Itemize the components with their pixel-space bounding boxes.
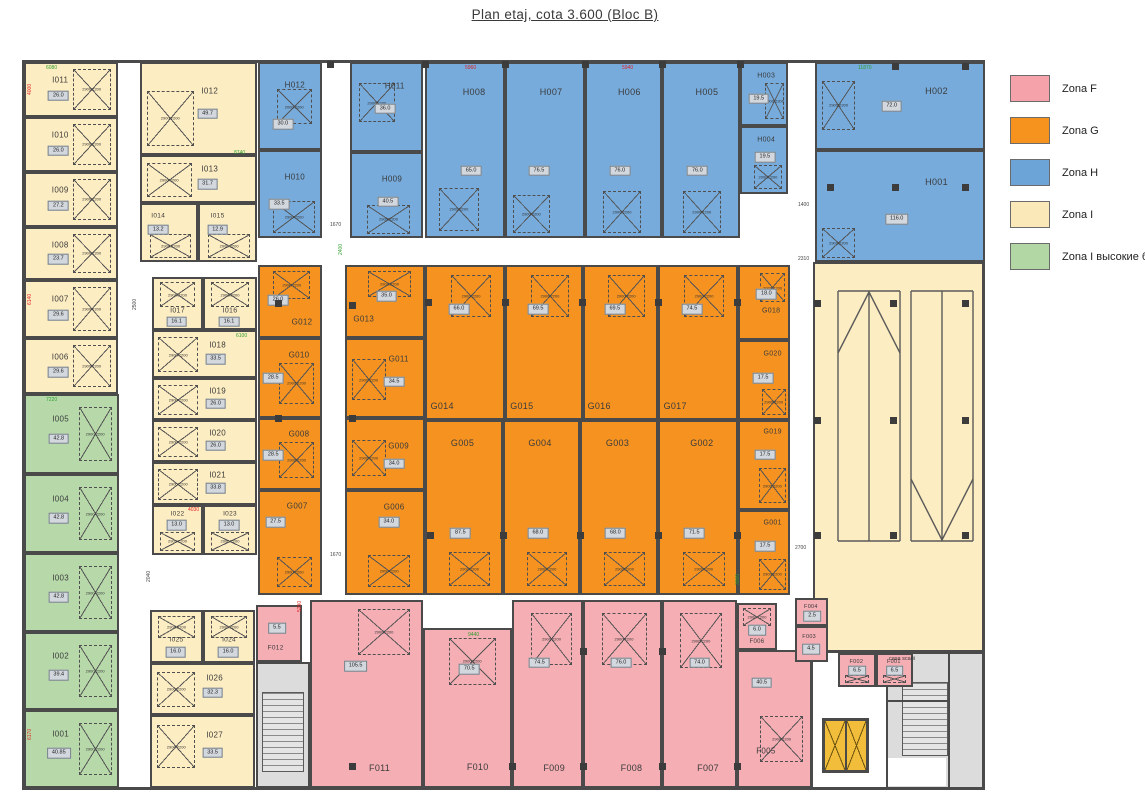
room-area-chip: 105.5 (344, 661, 368, 672)
column-marker (737, 61, 744, 68)
hatch-box: 2900/2200 (73, 179, 111, 220)
hatch-box: 2900/2200 (279, 442, 314, 479)
room-name-label: I001 (52, 730, 69, 739)
hatch-size-label: 2900/2200 (460, 567, 479, 572)
ramp-down-icon (910, 290, 974, 542)
hatch-box: 2900/2200 (439, 188, 479, 231)
room-area-chip: 40.5 (751, 678, 772, 689)
room-area-chip: 74.5 (529, 657, 550, 668)
room-I016: 2900/2200I01616.1 (203, 277, 257, 330)
room-F012: F0125.5 (256, 605, 302, 662)
hatch-size-label: 2900/2200 (287, 458, 306, 463)
hatch-box: 2900/2200 (211, 282, 249, 307)
column-marker (814, 532, 821, 539)
hatch-box: 2900/2200 (358, 609, 410, 655)
hatch-size-label: 2900/2200 (449, 207, 468, 212)
room-name-label: I022 (171, 510, 185, 517)
dimension-label: 11870 (858, 65, 872, 71)
room-name-label: F002 (849, 659, 863, 665)
room-F004: F0042.5 (795, 598, 828, 626)
room-area-chip: 71.5 (684, 528, 705, 539)
dimension-label: 6100 (236, 333, 247, 339)
room-G009: 2900/2200G00934.0 (345, 418, 425, 490)
room-name-label: H007 (540, 87, 563, 97)
room-area-chip: 87.5 (450, 528, 471, 539)
room-F005: 2900/2200F00540.5 (737, 650, 812, 788)
room-name-label: G013 (353, 315, 374, 324)
hatch-box: 2900/2200 (822, 81, 855, 130)
room-area-chip: 5.5 (268, 623, 286, 634)
room-area-chip: 16.1 (219, 316, 240, 327)
room-name-label: I015 (211, 213, 225, 220)
column-marker (962, 532, 969, 539)
column-marker (500, 532, 507, 539)
room-G017: 2900/2200G01774.5 (658, 265, 738, 420)
hatch-size-label: 2900/2200 (379, 217, 398, 222)
area-block (888, 758, 946, 786)
ramp-up-icon (837, 290, 901, 542)
dimension-label: 4000 (27, 84, 33, 95)
hatch-size-label: 2900/2200 (167, 624, 186, 629)
room-F003: F0034.5 (795, 626, 828, 662)
legend-label: Zona G (1062, 125, 1099, 137)
hatch-box: 2900/2200 (157, 672, 195, 708)
hatch-size-label: 2900/2200 (168, 292, 187, 297)
room-area-chip: 74.0 (689, 657, 710, 668)
column-marker (890, 417, 897, 424)
hatch-box: 2900/2200 (150, 234, 191, 258)
room-H002: 2900/2200H00272.0 (815, 62, 985, 150)
room-name-label: H009 (382, 174, 402, 183)
room-name-label: I013 (201, 165, 218, 174)
hatch-box: 2900/2200 (157, 725, 195, 768)
room-G010: 2900/2200G01028.5 (258, 338, 322, 418)
room-H007: 2900/2200H00776.5 (505, 62, 585, 238)
hatch-size-label: 2900/2200 (374, 630, 393, 635)
hatch-box: 2900/2200 (158, 427, 198, 457)
room-G008: 2900/2200G00828.5 (258, 418, 322, 490)
hatch-size-label: 2900/2200 (169, 352, 188, 357)
room-area-chip: 6.5 (886, 665, 904, 676)
column-marker (962, 63, 969, 70)
hatch-size-label: 2900/2200 (613, 209, 632, 214)
legend-swatch (1010, 243, 1050, 270)
room-I026: 2900/2200I02632.3 (150, 663, 255, 715)
room-G003: 2900/2200G00368.0 (580, 420, 658, 595)
legend-item: Zona I (1010, 201, 1140, 228)
legend-swatch (1010, 159, 1050, 186)
hatch-box: 2900/2200 (683, 552, 725, 586)
column-marker (962, 300, 969, 307)
room-name-label: G007 (287, 502, 308, 511)
legend-item: Zona F (1010, 75, 1140, 102)
hatch-size-label: 2000/2200 (285, 104, 304, 109)
room-name-label: G016 (588, 401, 611, 411)
room-name-label: I006 (52, 352, 69, 361)
room-G011: 2900/2200G01134.5 (345, 338, 425, 418)
hatch-size-label: 2900/2200 (522, 211, 541, 216)
room-I019: 2900/2200I01926.0 (152, 378, 257, 420)
room-G018: 2000/2200G01818.0 (738, 265, 790, 340)
dimension-label: 7220 (46, 397, 57, 403)
column-marker (892, 63, 899, 70)
column-marker (580, 648, 587, 655)
legend-label: Zona I высокие боксы (1062, 251, 1145, 263)
room-name-label: G010 (289, 351, 310, 360)
room-area-chip: 13.0 (166, 520, 187, 531)
room-name-label: F004 (804, 604, 818, 610)
room-name-label: G011 (389, 355, 409, 364)
room-name-label: G003 (606, 438, 629, 448)
column-marker (327, 61, 334, 68)
room-name-label: I016 (223, 308, 238, 315)
column-marker (349, 415, 356, 422)
room-name-label: F003 (802, 634, 816, 640)
room-area-chip: 33.8 (205, 483, 226, 494)
dimension-label: 6170 (27, 729, 33, 740)
hatch-box: 2900/2200 (158, 337, 198, 372)
room-name-label: I008 (52, 240, 69, 249)
room-I023: 2900/2200I02313.0 (203, 505, 257, 555)
hatch-box: 2900/2200 (368, 555, 410, 587)
legend-swatch (1010, 201, 1050, 228)
hatch-size-label: 2900/2200 (691, 638, 710, 643)
hatch-box: 2900/2200 (158, 385, 198, 415)
room-area-chip: 33.5 (205, 354, 226, 365)
hatch-box: 2900/2200 (603, 191, 641, 232)
column-marker (502, 61, 509, 68)
column-marker (962, 417, 969, 424)
hatch-size-label: 2900/2200 (86, 668, 105, 673)
hatch-size-label: 2900/2200 (169, 482, 188, 487)
hatch-size-label: 2900/2200 (168, 539, 187, 544)
room-area-chip: 6.0 (748, 625, 766, 636)
room-G019: 2900/2200G01917.5 (738, 420, 790, 510)
room-area-chip: 35.0 (376, 291, 397, 302)
column-marker (349, 763, 356, 770)
room-name-label: G014 (431, 401, 454, 411)
room-name-label: H010 (285, 173, 305, 182)
hatch-box: 2900/2200 (277, 557, 312, 587)
room-name-label: F011 (369, 763, 390, 773)
room-area-chip: 27.5 (265, 517, 286, 528)
room-area-chip: 42.8 (48, 592, 69, 603)
hatch-box: 2900/2200 (683, 191, 721, 232)
room-name-label: I024 (222, 637, 236, 644)
room-name-label: G001 (763, 520, 781, 527)
room-I017: 2900/2200I01716.1 (152, 277, 203, 330)
room-F007: 2900/2200F00774.0 (662, 600, 737, 788)
hatch-box: 2900/2200 (759, 559, 785, 590)
room-name-label: I019 (209, 386, 226, 395)
hatch-size-label: 2900/2200 (221, 292, 240, 297)
hatch-size-label: 2900/2200 (695, 293, 714, 298)
room-I009: 2900/2200I00927.2 (24, 172, 118, 227)
room-area-chip: 30.0 (272, 119, 293, 130)
room-name-label: F012 (268, 645, 284, 652)
dimension-label: 9440 (468, 632, 479, 638)
hatch-box: 2900/2200 (73, 124, 111, 165)
hatch-size-label: 2900/2200 (86, 746, 105, 751)
hatch-box: 2900/2200 (79, 487, 112, 540)
room-F002: F0026.5 (838, 653, 876, 687)
hatch-box: 2900/2200 (604, 552, 645, 586)
floor-plan-page: Plan etaj, cota 3.600 (Bloc B) 2900/2200… (0, 0, 1145, 800)
hatch-size-label: 2900/2200 (772, 737, 791, 742)
room-name-label: I023 (223, 510, 237, 517)
dimension-label: 6140 (27, 294, 33, 305)
hatch-size-label: 2900/2200 (86, 590, 105, 595)
room-H004: 2000/2200H00419.5 (740, 126, 788, 194)
hatch-size-label: 2900/2200 (161, 243, 180, 248)
room-F010: 2900/2200F01070.5 (423, 628, 512, 788)
room-name-label: G004 (528, 438, 551, 448)
room-name-label: H011 (385, 81, 405, 90)
hatch-size-label: 2900/2200 (287, 381, 306, 386)
hatch-size-label: 2900/2200 (829, 240, 848, 245)
hatch-size-label: 2900/2200 (82, 363, 101, 368)
hatch-size-label: 2900/2200 (542, 636, 561, 641)
room-area-chip: 42.8 (48, 433, 69, 444)
room-area-chip: 49.7 (197, 109, 218, 120)
room-I007: 2900/2200I00729.6 (24, 280, 118, 338)
column-marker (425, 299, 432, 306)
column-marker (890, 300, 897, 307)
hatch-box: 2900/2200 (762, 389, 786, 415)
dimension-label: 2500 (132, 299, 138, 310)
hatch-size-label: 2900/2200 (285, 214, 304, 219)
room-area-chip: 31.7 (197, 179, 218, 190)
room-area-chip: 76.0 (687, 165, 708, 176)
hatch-size-label: 2900/2200 (615, 567, 634, 572)
hatch-size-label: 2900/2200 (692, 209, 711, 214)
room-name-label: G012 (292, 318, 313, 327)
room-name-label: G020 (763, 351, 781, 358)
hatch-size-label: 2900/2200 (167, 687, 186, 692)
room-name-label: G017 (664, 401, 687, 411)
room-I020: 2900/2200I02026.0 (152, 420, 257, 462)
column-marker (427, 532, 434, 539)
room-area-chip: 72.0 (881, 101, 902, 112)
hatch-box: 2900/2200 (147, 163, 192, 197)
legend-item: Zona G (1010, 117, 1140, 144)
room-F008: 2900/2200F00876.0 (583, 600, 662, 788)
room-area-chip: 68.0 (605, 528, 626, 539)
room-G013: 2900/2200G01335.0 (345, 265, 425, 338)
room-G015: 2900/2200G01569.5 (505, 265, 583, 420)
room-I003: 2900/2200I00342.8 (24, 553, 119, 632)
hatch-size-label: 2900/2200 (169, 439, 188, 444)
room-name-label: G005 (451, 438, 474, 448)
room-name-label: G008 (289, 429, 310, 438)
room-name-label: I007 (52, 295, 69, 304)
room-name-label: H008 (463, 87, 486, 97)
room-G012: 2900/2200G01226.0 (258, 265, 322, 338)
room-I002: 2900/2200I00239.4 (24, 632, 119, 710)
column-marker (275, 415, 282, 422)
column-marker (890, 532, 897, 539)
hatch-box: 2900/2200 (147, 91, 194, 146)
elevator-cell (846, 720, 868, 771)
hatch-size-label: 2900/2200 (82, 197, 101, 202)
hatch-box: 2900/2200 (160, 282, 196, 307)
hatch-box: 2900/2200 (79, 645, 112, 697)
room-area-chip: 66.0 (449, 304, 470, 315)
dimension-label: 2040 (146, 571, 152, 582)
hatch-box: 2900/2200 (208, 234, 250, 258)
room-area-chip: 69.5 (604, 304, 625, 315)
room-area-chip: 34.0 (378, 517, 399, 528)
hatch-box: 2900/2200 (527, 552, 567, 586)
room-I004: 2900/2200I00442.8 (24, 474, 119, 553)
stairs (262, 692, 304, 772)
column-marker (502, 299, 509, 306)
legend-item: Zona H (1010, 159, 1140, 186)
column-marker (580, 763, 587, 770)
room-area-chip: 42.8 (48, 513, 69, 524)
hatch-box: 2900/2200 (79, 566, 112, 619)
room-H012: 2000/2200H01230.0 (258, 62, 322, 150)
room-area-chip: 16.0 (165, 647, 186, 658)
room-G014: 2900/2200G01466.0 (425, 265, 505, 420)
room-area-chip: 116.0 (885, 214, 908, 225)
room-name-label: H012 (285, 81, 305, 90)
room-I008: 2900/2200I00823.7 (24, 227, 118, 280)
hatch-size-label: 2900/2200 (221, 539, 240, 544)
room-name-label: I009 (52, 186, 69, 195)
room-area-chip: 26.0 (48, 90, 69, 101)
room-name-label: H003 (757, 73, 775, 80)
column-marker (962, 184, 969, 191)
room-area-chip: 39.4 (48, 670, 69, 681)
room-G001: 2900/2200G00117.5 (738, 510, 790, 595)
hatch-box: 2900/2200 (158, 616, 195, 638)
dimension-label: 2700 (795, 545, 806, 551)
dimension-label: 1670 (330, 222, 341, 228)
hatch-size-label: 2900/2200 (82, 142, 101, 147)
hatch-size-label: 2900/2200 (82, 306, 101, 311)
room-name-label: G006 (384, 503, 405, 512)
hatch-size-label: 2900/2200 (167, 744, 186, 749)
room-area-chip: 13.0 (219, 520, 240, 531)
room-F011: 2900/2200F011105.5 (310, 600, 423, 788)
room-name-label: G019 (763, 429, 781, 436)
hatch-size-label: 2900/2200 (763, 483, 782, 488)
room-I024: 2900/2200I02416.0 (203, 610, 255, 663)
hatch-box: 2900/2200 (449, 552, 490, 586)
room-name-label: H001 (925, 177, 948, 187)
room-H001: 2900/2200H001116.0 (815, 150, 985, 262)
column-marker (509, 763, 516, 770)
room-name-label: F005 (756, 747, 775, 756)
room-name-label: H004 (757, 136, 775, 143)
room-area-chip: 76.0 (611, 657, 632, 668)
hatch-size-label: 2900/2200 (615, 636, 634, 641)
hatch-size-label: 2900/2200 (617, 293, 636, 298)
dimension-label: 2310 (798, 256, 809, 262)
room-area-chip: 69.5 (528, 304, 549, 315)
column-marker (579, 299, 586, 306)
room-area-chip: 28.5 (263, 450, 284, 461)
hatch-size-label: 2900/2200 (829, 103, 848, 108)
room-area-chip: 16.1 (166, 316, 187, 327)
room-H006: 2900/2200H00676.0 (585, 62, 662, 238)
room-area-chip: 19.5 (755, 152, 776, 163)
dimension-label: 8740 (234, 150, 245, 156)
hatch-size-label: 2900/2200 (540, 293, 559, 298)
dimension-label: 4030 (188, 507, 199, 513)
room-area-chip: 17.5 (755, 541, 776, 552)
room-H005: 2900/2200H00576.0 (662, 62, 740, 238)
room-I006: 2900/2200I00629.6 (24, 338, 118, 394)
room-G006: 2900/2200G00634.0 (345, 490, 425, 595)
room-F006: 2900/2200F0066.0 (737, 603, 777, 650)
room-area-chip: 6.5 (848, 665, 866, 676)
hatch-size-label: 2900/2200 (169, 397, 188, 402)
room-H011: 2000/2200H01136.0 (350, 62, 423, 152)
room-I025: 2900/2200I02516.0 (150, 610, 203, 663)
legend-swatch (1010, 117, 1050, 144)
room-area-chip: 13.2 (148, 224, 169, 235)
hatch-box: 2900/2200 (73, 287, 111, 330)
room-area-chip: 18.0 (756, 289, 777, 300)
hatch-box: 2900/2200 (352, 440, 386, 475)
column-marker (892, 184, 899, 191)
column-marker (655, 532, 662, 539)
room-area-chip: 34.5 (384, 377, 405, 388)
room-I021: 2900/2200I02133.8 (152, 462, 257, 505)
room-area-chip: 70.5 (459, 664, 480, 675)
hatch-size-label: 2900/2200 (359, 456, 378, 461)
hatch-size-label: 2900/2200 (764, 400, 783, 405)
room-G005: 2900/2200G00587.5 (425, 420, 503, 595)
wall-segment (886, 700, 948, 702)
room-area-chip: 12.9 (207, 224, 228, 235)
room-name-label: H005 (696, 87, 719, 97)
hatch-size-label: 2900/2200 (82, 251, 101, 256)
column-marker (582, 61, 589, 68)
room-area-chip: 19.5 (748, 94, 769, 105)
room-I015: 2900/2200I01512.9 (198, 203, 257, 262)
hatch-size-label: 2900/2200 (282, 282, 301, 287)
hatch-size-label: 2900/2200 (694, 567, 713, 572)
hatch-box: 2900/2200 (211, 532, 249, 551)
room-F009: 2900/2200F00974.5 (512, 600, 583, 788)
room-area-chip: 26.0 (205, 398, 226, 409)
hatch-box: 2900/2200 (352, 359, 386, 400)
dimension-label: 5960 (465, 65, 476, 71)
room-name-label: G009 (388, 441, 409, 450)
hatch-box: 2900/2200 (513, 195, 549, 233)
room-name-label: I014 (151, 213, 165, 220)
hatch-box: 2900/2200 (158, 469, 198, 500)
hatch-size-label: 2900/2200 (380, 568, 399, 573)
column-marker (659, 61, 666, 68)
hatch-box: 2900/2200 (211, 616, 247, 638)
room-area-chip: 29.6 (48, 310, 69, 321)
room-name-label: I004 (52, 494, 69, 503)
legend-swatch (1010, 75, 1050, 102)
elevator-cell (824, 720, 846, 771)
room-name-label: I012 (201, 86, 218, 95)
hatch-size-label: 2900/2200 (537, 567, 556, 572)
column-marker (349, 302, 356, 309)
room-name-label: I021 (209, 470, 226, 479)
hatch-box: 2900/2200 (160, 532, 196, 551)
room-area-chip: 23.7 (48, 254, 69, 265)
hatch-box: 2900/2200 (73, 69, 111, 110)
room-G002: 2900/2200G00271.5 (658, 420, 738, 595)
